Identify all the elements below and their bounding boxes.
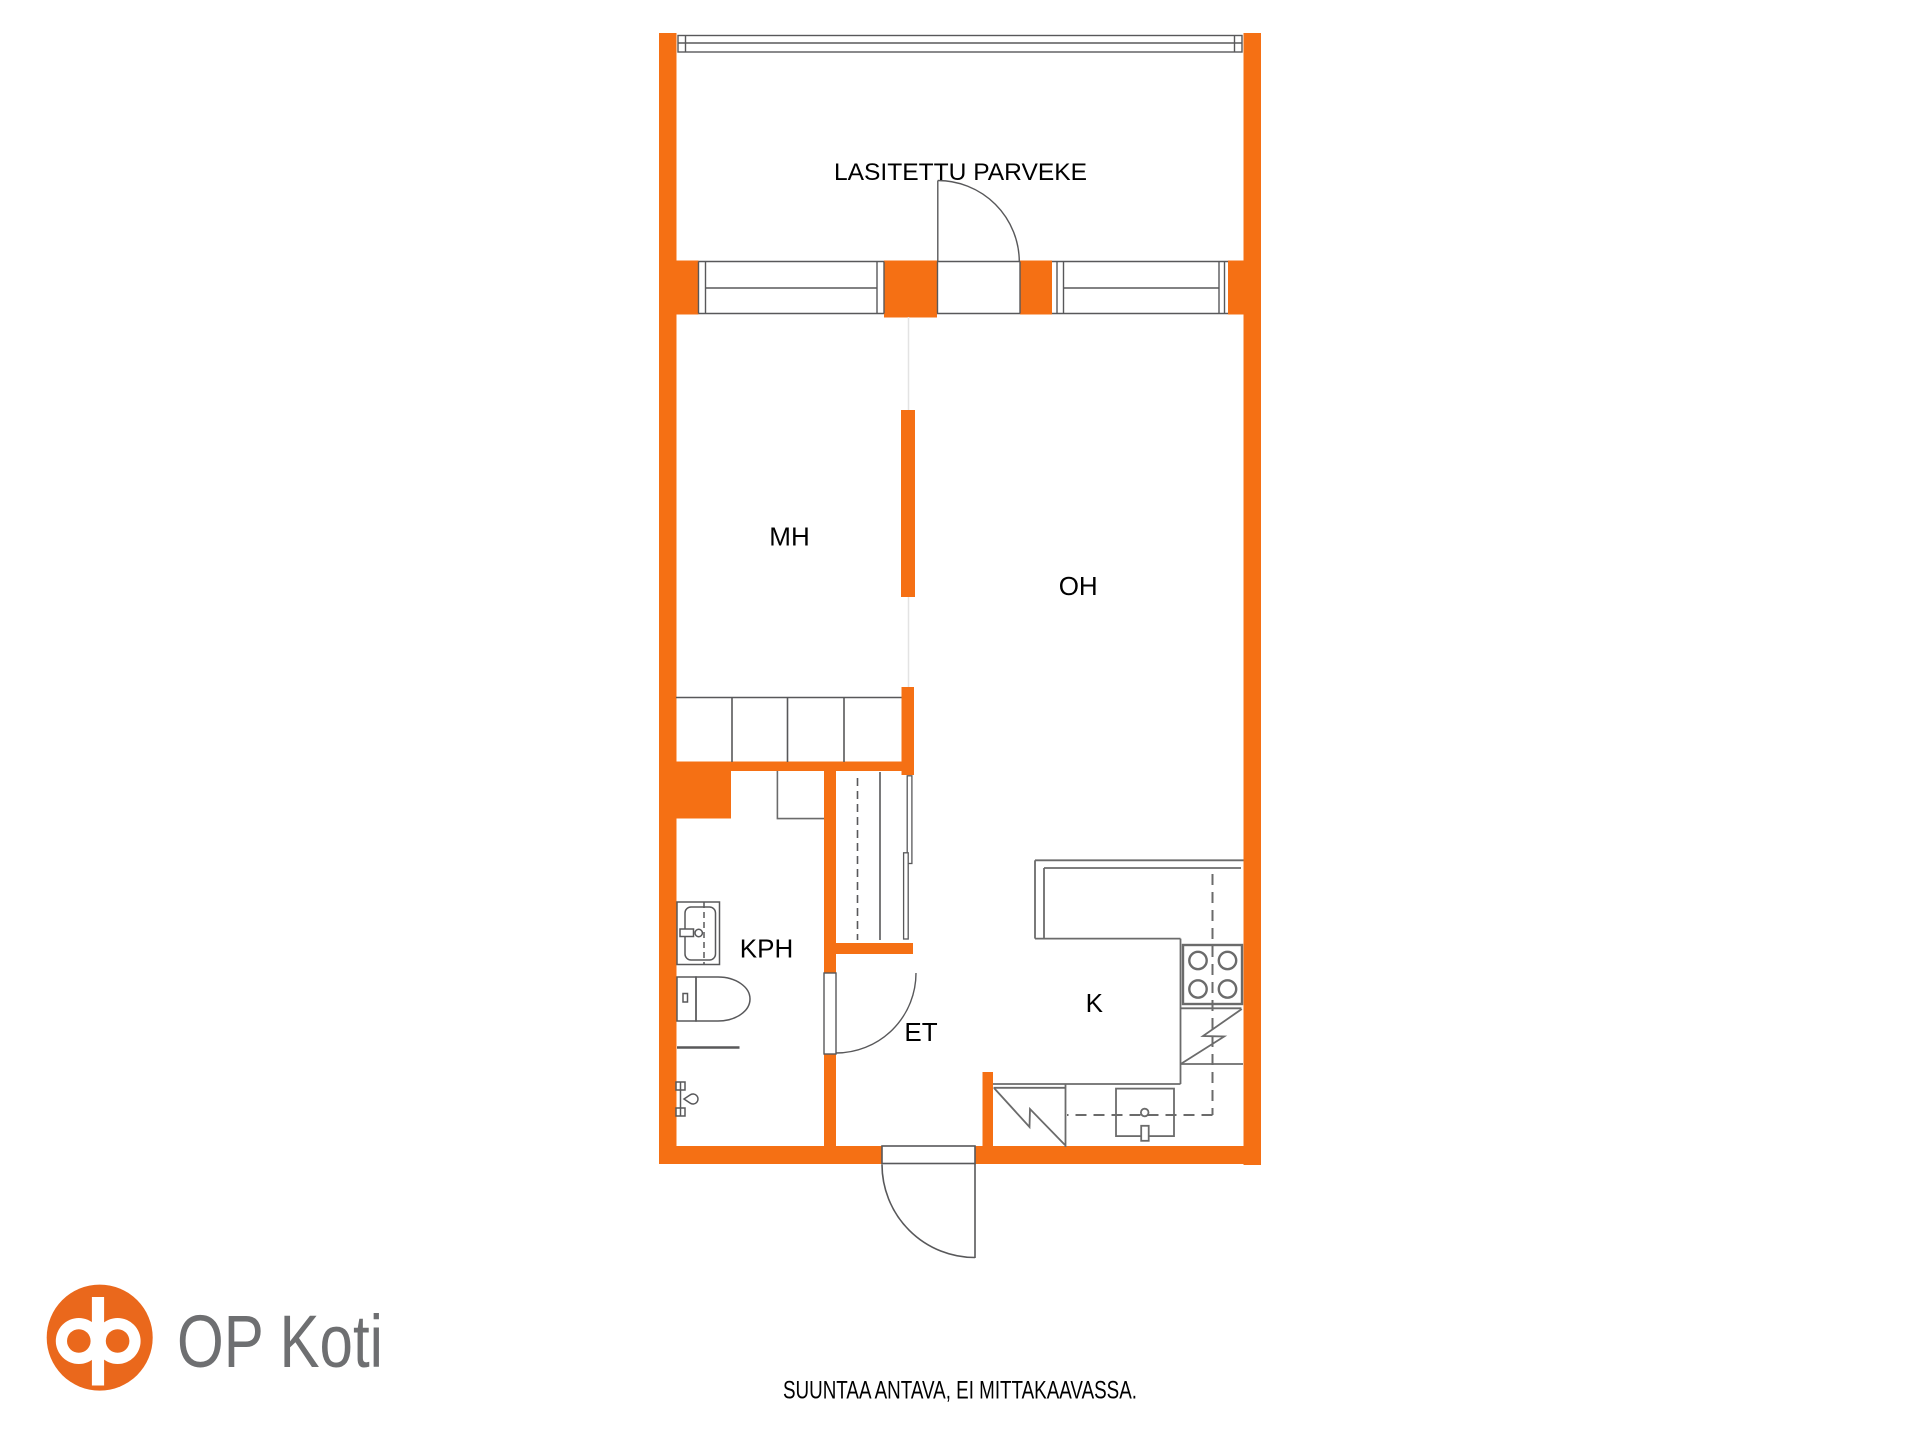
svg-text:LASITETTU PARVEKE: LASITETTU PARVEKE (834, 159, 1087, 186)
svg-text:ET: ET (904, 1017, 937, 1047)
svg-text:MH: MH (769, 521, 809, 551)
svg-text:KPH: KPH (740, 933, 793, 963)
svg-text:OP Koti: OP Koti (177, 1300, 383, 1383)
svg-text:OH: OH (1059, 571, 1098, 601)
svg-text:K: K (1086, 988, 1104, 1018)
svg-text:SUUNTAA ANTAVA, EI MITTAKAAVAS: SUUNTAA ANTAVA, EI MITTAKAAVASSA. (783, 1376, 1137, 1404)
